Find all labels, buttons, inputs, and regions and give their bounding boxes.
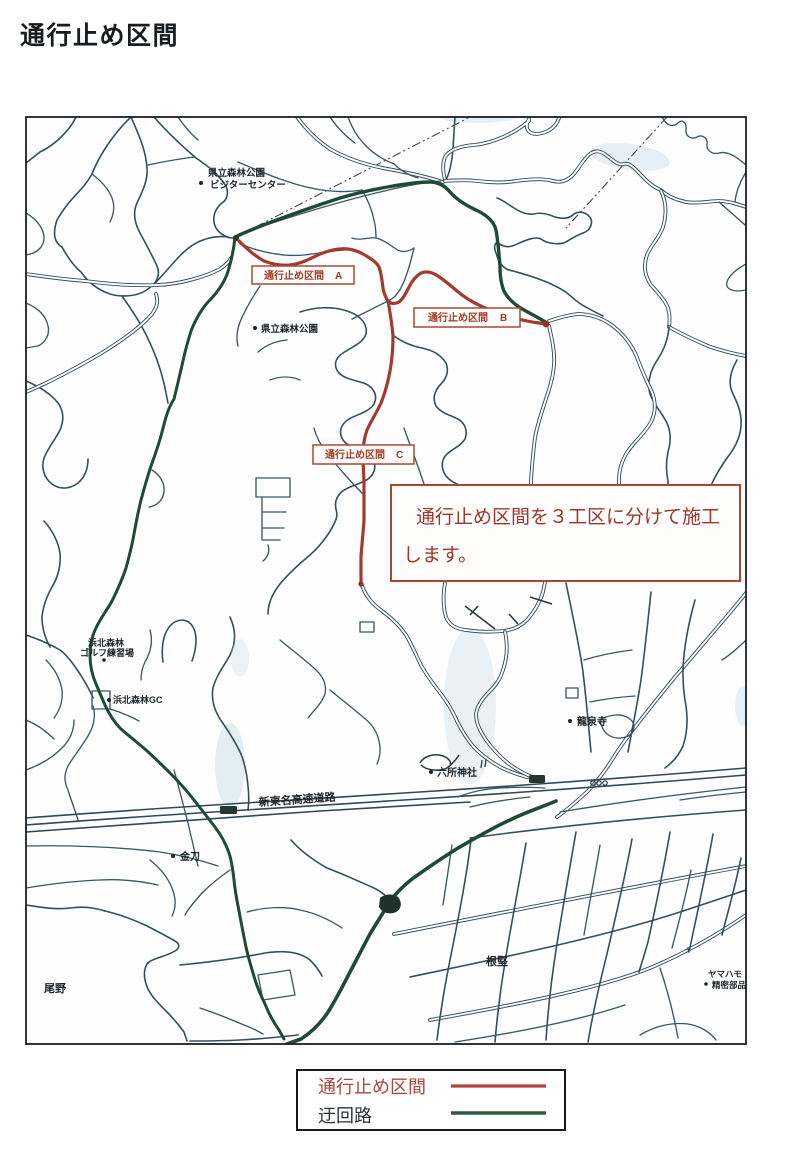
svg-text:通行止め区間: 通行止め区間 (20, 22, 179, 50)
svg-text:ゴルフ練習場: ゴルフ練習場 (80, 647, 134, 658)
svg-text:県立森林公園: 県立森林公園 (208, 167, 265, 179)
svg-text:C: C (396, 450, 403, 461)
svg-text:A: A (335, 271, 342, 282)
svg-text:精密部品: 精密部品 (712, 980, 747, 990)
svg-text:通行止め区間: 通行止め区間 (428, 311, 488, 324)
svg-text:通行止め区間: 通行止め区間 (325, 448, 385, 461)
svg-text:通行止め区間を３工区に分けて施工: 通行止め区間を３工区に分けて施工 (416, 506, 720, 528)
svg-text:浜北森林GC: 浜北森林GC (113, 694, 163, 705)
svg-text:します。: します。 (403, 545, 477, 566)
svg-text:根堅: 根堅 (486, 954, 508, 968)
svg-text:尾野: 尾野 (43, 982, 66, 995)
svg-text:六所神社: 六所神社 (437, 766, 477, 779)
svg-text:迂回路: 迂回路 (318, 1106, 372, 1126)
svg-text:金刀: 金刀 (179, 850, 200, 863)
svg-text:浜北森林: 浜北森林 (88, 637, 125, 648)
svg-text:ビジターセンター: ビジターセンター (210, 179, 286, 191)
svg-text:県立森林公園: 県立森林公園 (261, 323, 318, 335)
svg-text:B: B (500, 313, 507, 324)
svg-text:通行止め区間: 通行止め区間 (264, 269, 324, 282)
svg-text:通行止め区間: 通行止め区間 (318, 1077, 426, 1097)
svg-text:龍泉寺: 龍泉寺 (577, 715, 607, 728)
svg-text:ヤマハモ: ヤマハモ (708, 969, 742, 979)
